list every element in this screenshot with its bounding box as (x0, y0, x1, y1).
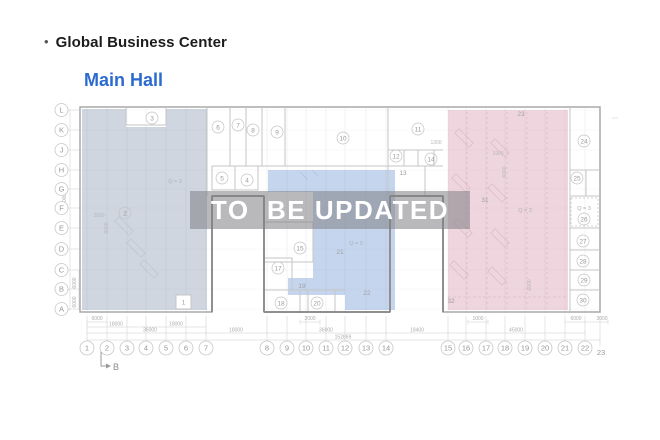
watermark-band: TO BE UPDATED (190, 191, 470, 229)
svg-text:18000: 18000 (169, 322, 183, 328)
svg-text:Q = 3: Q = 3 (518, 208, 532, 214)
bottom-dimension-labels: 6000 2000 1000 6000 3000 18000 18000 360… (91, 316, 607, 341)
svg-text:11: 11 (322, 344, 330, 353)
svg-text:17: 17 (482, 344, 490, 353)
svg-text:152869: 152869 (335, 335, 352, 341)
svg-text:26: 26 (580, 217, 588, 224)
svg-text:3: 3 (125, 344, 129, 353)
section-marker: B (101, 352, 119, 372)
svg-text:16: 16 (462, 344, 470, 353)
svg-text:4: 4 (245, 178, 249, 185)
svg-text:18: 18 (277, 301, 285, 308)
svg-text:10: 10 (302, 344, 310, 353)
svg-text:3000: 3000 (596, 316, 607, 322)
svg-text:6000: 6000 (72, 277, 78, 288)
svg-text:31: 31 (481, 197, 489, 204)
svg-text:3: 3 (150, 116, 154, 123)
svg-text:6000: 6000 (502, 166, 508, 177)
svg-text:G: G (59, 185, 65, 194)
watermark-text: TO BE UPDATED (211, 195, 449, 226)
svg-text:32: 32 (447, 298, 455, 305)
svg-text:23: 23 (517, 111, 525, 118)
svg-text:1000: 1000 (472, 316, 483, 322)
svg-text:2000: 2000 (304, 316, 315, 322)
svg-text:1300: 1300 (430, 140, 441, 146)
svg-text:1900: 1900 (492, 151, 503, 157)
col-axis-label-23: 23 (597, 348, 605, 357)
floor-plan-viewer: • Global Business Center Main Hall (0, 0, 660, 440)
svg-text:4: 4 (144, 344, 148, 353)
svg-text:15: 15 (444, 344, 452, 353)
svg-text:C: C (59, 266, 65, 275)
svg-text:2690: 2690 (93, 213, 104, 219)
svg-text:22: 22 (363, 290, 371, 297)
svg-text:Q = 3: Q = 3 (577, 206, 591, 212)
svg-text:30: 30 (579, 298, 587, 305)
svg-text:22: 22 (581, 344, 589, 353)
svg-text:27: 27 (579, 239, 587, 246)
svg-text:15: 15 (296, 246, 304, 253)
svg-text:20: 20 (313, 301, 321, 308)
svg-text:20: 20 (541, 344, 549, 353)
svg-text:D: D (59, 245, 65, 254)
svg-text:45000: 45000 (509, 328, 523, 334)
svg-text:6000: 6000 (91, 316, 102, 322)
svg-text:28: 28 (579, 259, 587, 266)
svg-text:1: 1 (85, 344, 89, 353)
svg-text:19: 19 (298, 283, 306, 290)
svg-text:2: 2 (105, 344, 109, 353)
svg-text:7: 7 (236, 123, 240, 130)
svg-text:12: 12 (341, 344, 349, 353)
svg-text:9: 9 (285, 344, 289, 353)
svg-text:21: 21 (336, 249, 344, 256)
svg-text:K: K (59, 126, 64, 135)
svg-text:6000: 6000 (570, 316, 581, 322)
svg-text:5: 5 (220, 176, 224, 183)
svg-text:12: 12 (392, 154, 400, 161)
svg-text:17: 17 (274, 266, 282, 273)
svg-text:18400: 18400 (410, 328, 424, 334)
row-axis: L K J H G F E D C B A (55, 104, 68, 316)
svg-text:10: 10 (339, 136, 347, 143)
svg-text:A: A (59, 305, 64, 314)
svg-text:29: 29 (580, 278, 588, 285)
svg-text:6000: 6000 (72, 296, 78, 307)
svg-text:B: B (113, 362, 119, 372)
svg-text:6: 6 (184, 344, 188, 353)
svg-text:B: B (59, 285, 64, 294)
svg-text:36000: 36000 (319, 328, 333, 334)
svg-text:6000: 6000 (527, 279, 533, 290)
svg-text:13: 13 (362, 344, 370, 353)
svg-text:5: 5 (164, 344, 168, 353)
svg-text:14: 14 (427, 157, 435, 164)
col-axis: 1 2 3 4 5 6 7 8 9 10 11 12 13 14 15 16 1… (80, 341, 605, 357)
svg-text:18000: 18000 (229, 328, 243, 334)
svg-text:36000: 36000 (143, 328, 157, 334)
svg-text:14: 14 (382, 344, 390, 353)
svg-text:2: 2 (123, 211, 127, 218)
svg-text:8: 8 (265, 344, 269, 353)
svg-text:24: 24 (580, 139, 588, 146)
svg-text:L: L (59, 106, 63, 115)
svg-text:13: 13 (399, 170, 407, 177)
svg-text:E: E (59, 224, 64, 233)
svg-text:25: 25 (573, 176, 581, 183)
svg-text:1: 1 (182, 300, 186, 307)
svg-text:Q = 3: Q = 3 (168, 179, 182, 185)
svg-text:18: 18 (501, 344, 509, 353)
zone-left (82, 109, 207, 310)
svg-text:21: 21 (561, 344, 569, 353)
svg-text:9: 9 (275, 130, 279, 137)
svg-text:H: H (59, 166, 64, 175)
svg-text:19: 19 (521, 344, 529, 353)
svg-text:7: 7 (204, 344, 208, 353)
svg-text:6: 6 (216, 125, 220, 132)
svg-text:Q = 3: Q = 3 (349, 241, 363, 247)
svg-text:9000: 9000 (104, 222, 110, 233)
svg-text:11: 11 (415, 127, 422, 134)
svg-text:F: F (59, 204, 64, 213)
svg-text:18000: 18000 (109, 322, 123, 328)
svg-text:8: 8 (251, 128, 255, 135)
svg-text:J: J (60, 146, 64, 155)
